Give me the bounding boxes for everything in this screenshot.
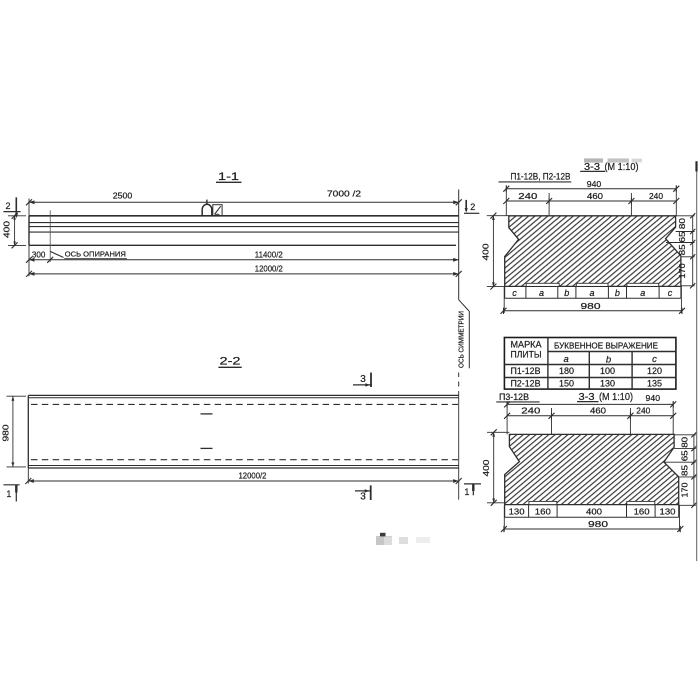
svg-text:120: 120 [647, 366, 662, 376]
svg-text:2: 2 [5, 201, 10, 211]
svg-text:3: 3 [360, 492, 366, 503]
svg-text:980: 980 [2, 424, 11, 442]
svg-text:240: 240 [636, 405, 650, 415]
svg-text:3: 3 [360, 374, 366, 385]
svg-text:a: a [589, 288, 594, 298]
svg-text:85: 85 [678, 244, 687, 256]
svg-text:80: 80 [680, 436, 689, 448]
svg-text:65: 65 [678, 231, 687, 243]
svg-text:1: 1 [6, 489, 11, 499]
svg-text:БУКВЕННОЕ ВЫРАЖЕНИЕ: БУКВЕННОЕ ВЫРАЖЕНИЕ [554, 341, 658, 351]
svg-text:160: 160 [634, 507, 650, 517]
svg-text:300: 300 [32, 249, 46, 259]
svg-text:400: 400 [482, 243, 491, 261]
svg-text:a: a [640, 288, 645, 298]
svg-text:(М 1:10): (М 1:10) [599, 392, 633, 403]
svg-text:ОСЬ ОПИРАНИЯ: ОСЬ ОПИРАНИЯ [65, 252, 126, 259]
svg-text:135: 135 [647, 379, 662, 389]
svg-text:7000 /2: 7000 /2 [327, 189, 361, 199]
svg-text:980: 980 [588, 519, 608, 529]
svg-text:940: 940 [646, 393, 661, 403]
svg-text:940: 940 [587, 179, 602, 189]
svg-text:12000/2: 12000/2 [255, 263, 283, 273]
svg-text:2: 2 [470, 202, 475, 212]
svg-text:2500: 2500 [113, 190, 133, 200]
svg-text:400: 400 [482, 459, 491, 477]
svg-text:c: c [668, 288, 673, 298]
svg-text:100: 100 [600, 366, 615, 376]
svg-text:460: 460 [590, 405, 606, 415]
svg-text:130: 130 [600, 379, 615, 389]
svg-text:c: c [512, 288, 517, 298]
svg-text:460: 460 [587, 191, 603, 201]
svg-text:1: 1 [464, 487, 469, 497]
svg-text:П1-12В: П1-12В [511, 366, 541, 376]
svg-text:11400/2: 11400/2 [255, 249, 283, 259]
svg-text:b: b [615, 288, 620, 298]
svg-text:130: 130 [509, 507, 525, 517]
svg-text:ПЛИТЫ: ПЛИТЫ [511, 350, 542, 360]
svg-text:(М 1:10): (М 1:10) [605, 162, 639, 173]
svg-text:ОСЬ СИММЕТРИИ: ОСЬ СИММЕТРИИ [457, 311, 466, 368]
svg-text:85: 85 [680, 464, 689, 476]
svg-text:240: 240 [521, 405, 540, 415]
svg-text:12000/2: 12000/2 [239, 470, 267, 480]
svg-text:400: 400 [586, 507, 602, 517]
svg-text:160: 160 [535, 507, 551, 517]
svg-text:150: 150 [559, 379, 574, 389]
svg-text:400: 400 [2, 220, 11, 238]
svg-text:980: 980 [581, 301, 601, 311]
svg-text:240: 240 [649, 191, 663, 201]
svg-text:МАРКА: МАРКА [511, 339, 542, 349]
svg-text:180: 180 [559, 366, 574, 376]
svg-text:65: 65 [680, 450, 689, 462]
svg-text:c: c [652, 354, 657, 365]
svg-text:П3-12В: П3-12В [499, 392, 529, 402]
svg-text:П1-12В, П2-12В: П1-12В, П2-12В [511, 172, 571, 182]
svg-text:1-1: 1-1 [218, 171, 239, 183]
svg-text:130: 130 [660, 507, 676, 517]
svg-text:П2-12В: П2-12В [511, 379, 541, 389]
svg-text:a: a [564, 354, 569, 365]
svg-text:170: 170 [678, 263, 687, 279]
svg-text:170: 170 [680, 482, 689, 498]
svg-text:a: a [539, 288, 544, 298]
svg-text:b: b [564, 288, 569, 298]
svg-text:b: b [606, 354, 611, 365]
svg-text:80: 80 [678, 217, 687, 229]
svg-text:240: 240 [518, 191, 537, 201]
svg-text:2-2: 2-2 [220, 356, 241, 368]
